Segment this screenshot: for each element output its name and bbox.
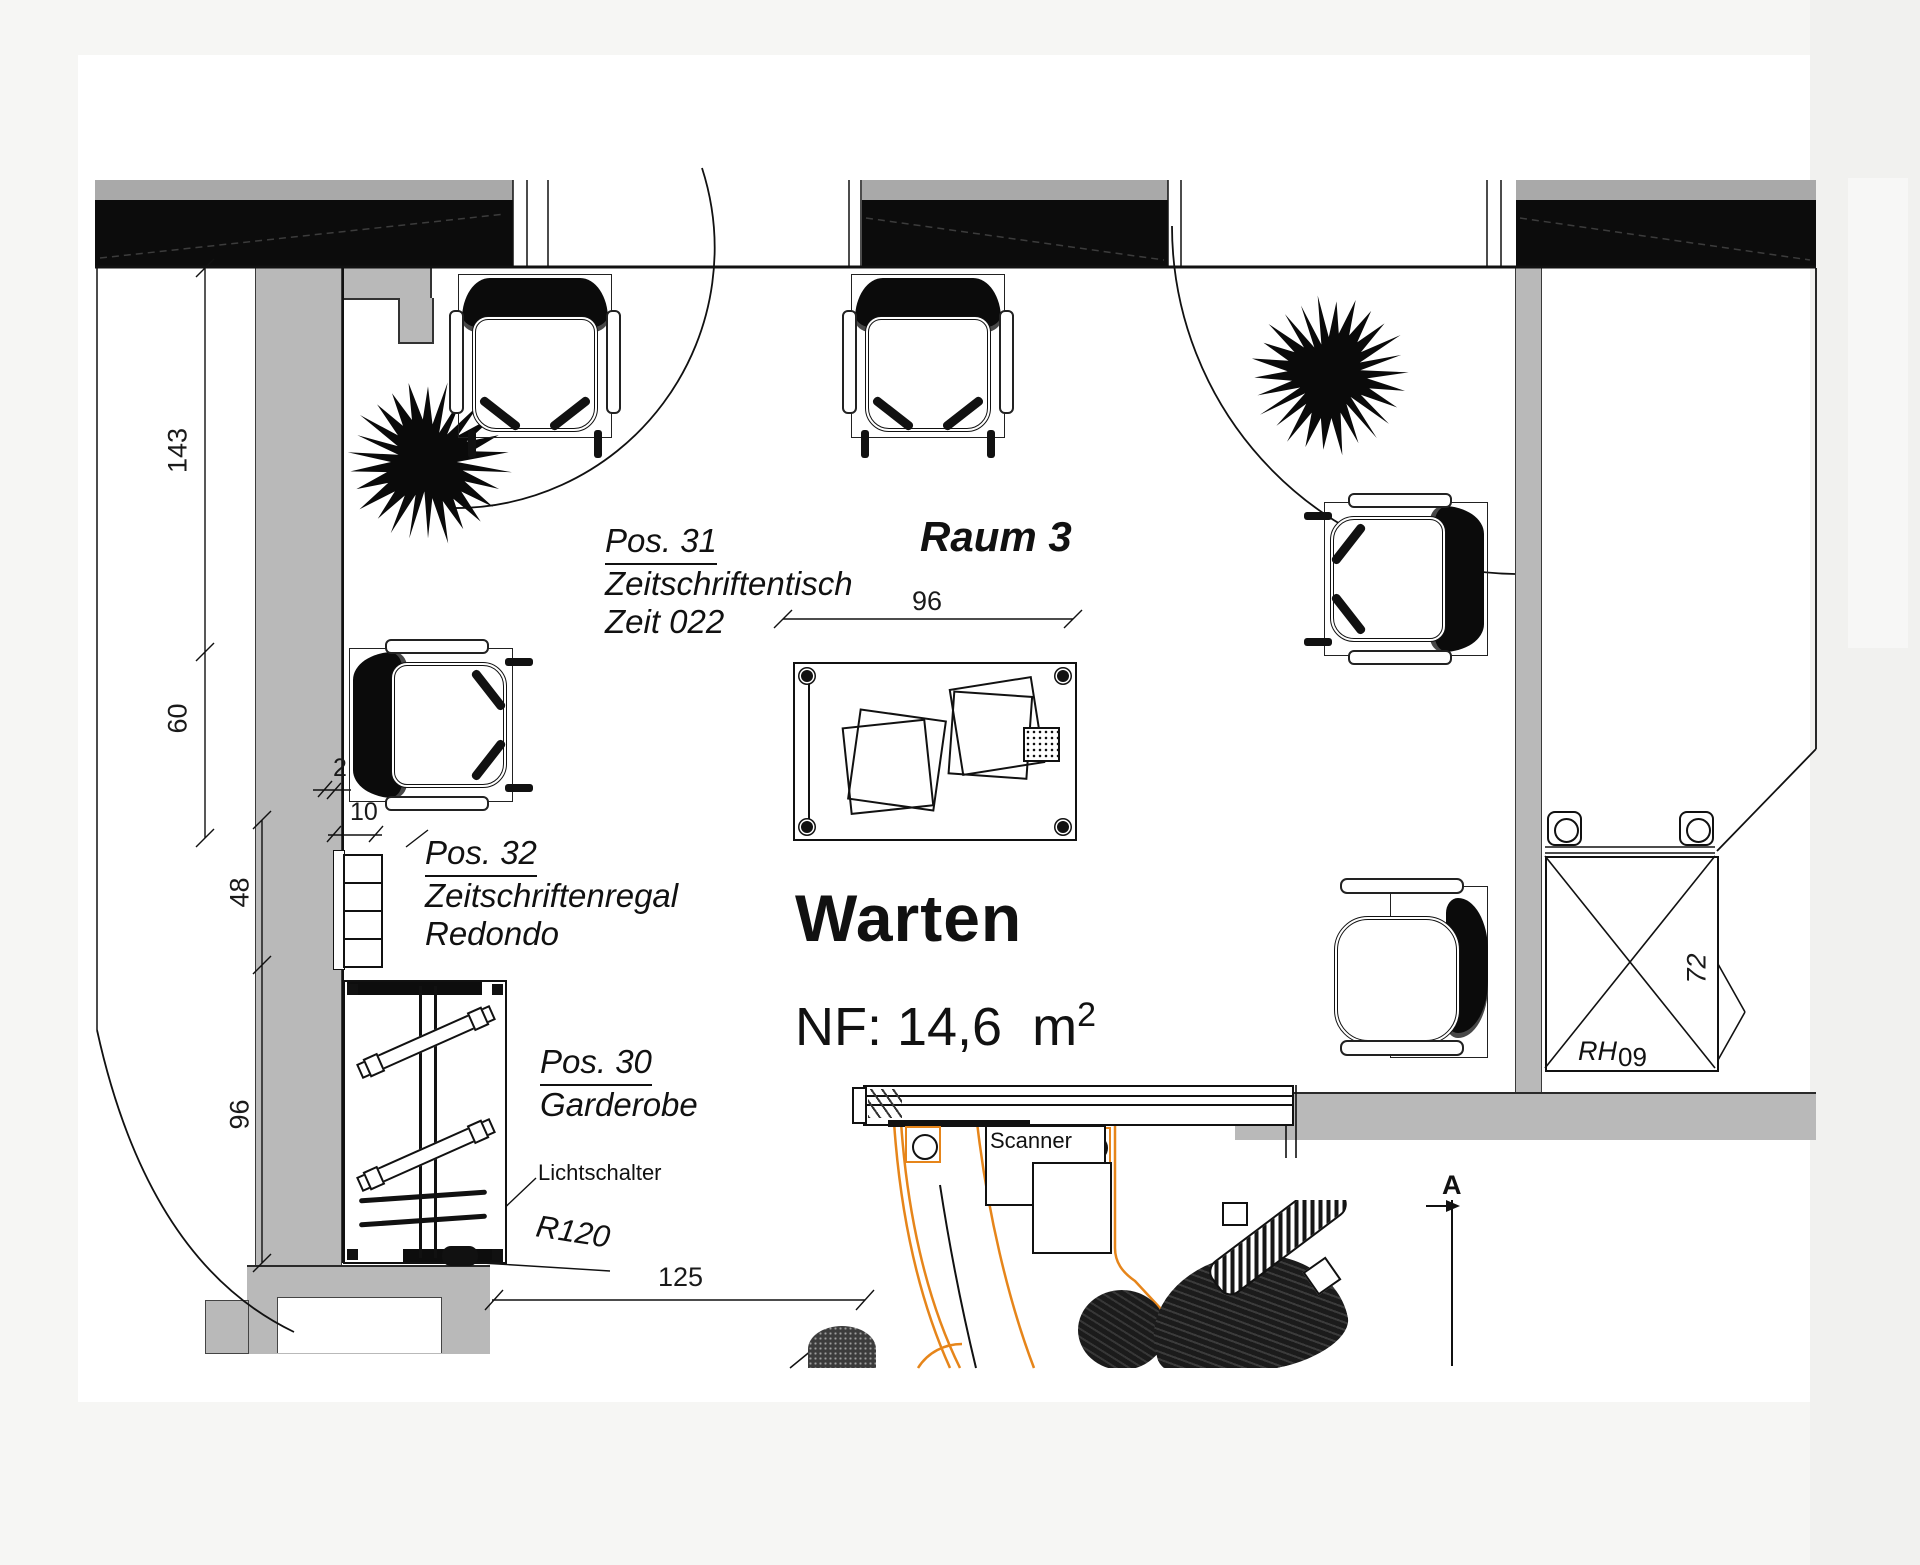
- pos32-ref: Pos. 32: [425, 834, 537, 877]
- magazines-stack: [847, 708, 947, 811]
- dim-72: 72: [1682, 909, 1713, 1029]
- light-switch-symbol: [442, 1246, 478, 1266]
- waiting-chair-right: [1304, 494, 1490, 664]
- plant-icon: [1242, 287, 1418, 463]
- dim-96-left: 96: [225, 1055, 256, 1175]
- stool-shape: [808, 1326, 876, 1368]
- pos31-annotation: Pos. 31 Zeitschriftentisch Zeit 022: [605, 522, 853, 641]
- zone-label: Warten: [795, 880, 1022, 956]
- cabinet-num-label: 09: [1618, 1042, 1647, 1073]
- dim-96-table: 96: [912, 586, 942, 617]
- magazine-rack: [343, 854, 383, 968]
- door-swing-entry: [97, 1030, 294, 1332]
- radius-leader: [482, 1263, 610, 1271]
- scanner-label: Scanner: [990, 1128, 1072, 1154]
- pos32-item: Zeitschriftenregal: [425, 877, 678, 914]
- wardrobe: [343, 980, 507, 1264]
- table-accessory: [1023, 727, 1060, 762]
- cabinet-code-label: RH: [1578, 1036, 1617, 1067]
- pos31-model: Zeit 022: [605, 603, 724, 640]
- dim-125: 125: [658, 1262, 703, 1293]
- task-chair-armrest-left: [1078, 1290, 1166, 1368]
- dim-2: 2: [333, 754, 347, 783]
- waiting-chair-top-left: [450, 272, 620, 458]
- desk-curve-black: [940, 1185, 976, 1368]
- pos32-model: Redondo: [425, 915, 559, 952]
- chamfer-line: [1717, 749, 1816, 851]
- dim-48: 48: [225, 833, 256, 953]
- spotlight-icon: [1547, 811, 1582, 846]
- floor-plan-canvas: Scanner Raum 3 Pos. 31 Zeitschriftentisc…: [0, 0, 1920, 1565]
- door-jamb-lines: [513, 180, 1501, 267]
- section-label: A: [1442, 1170, 1462, 1201]
- scanner-port-left: [905, 1126, 941, 1163]
- room-title: Raum 3: [920, 513, 1072, 561]
- pos32-annotation: Pos. 32 Zeitschriftenregal Redondo: [425, 834, 678, 953]
- task-chair-clip: [1040, 1200, 1460, 1368]
- waiting-chair-top-right: [843, 272, 1013, 458]
- pos30-item: Garderobe: [540, 1086, 698, 1123]
- pos30-ref: Pos. 30: [540, 1043, 652, 1086]
- pos31-ref: Pos. 31: [605, 522, 717, 565]
- glazing-dashes: [100, 214, 1810, 260]
- pos30-annotation: Pos. 30 Garderobe: [540, 1043, 698, 1124]
- dim-chain-left-b: [253, 811, 271, 1272]
- dim-chain-left-a: [196, 259, 214, 847]
- dim-10: 10: [350, 798, 378, 827]
- stool-clip: [770, 1300, 900, 1368]
- spotlight-icon: [1679, 811, 1714, 846]
- dim-60: 60: [163, 659, 194, 779]
- counter-end-cap: [852, 1087, 867, 1124]
- pos31-item: Zeitschriftentisch: [605, 565, 853, 602]
- counter-hatch: [868, 1089, 902, 1118]
- area-label: NF: 14,6 m2: [795, 996, 1096, 1058]
- light-switch-label: Lichtschalter: [538, 1160, 662, 1186]
- armchair-right-lower: [1320, 880, 1490, 1066]
- dim-143: 143: [163, 391, 194, 511]
- task-chair-hook: [1222, 1202, 1248, 1226]
- waiting-chair-left: [347, 640, 533, 810]
- magazine-table: [793, 662, 1077, 841]
